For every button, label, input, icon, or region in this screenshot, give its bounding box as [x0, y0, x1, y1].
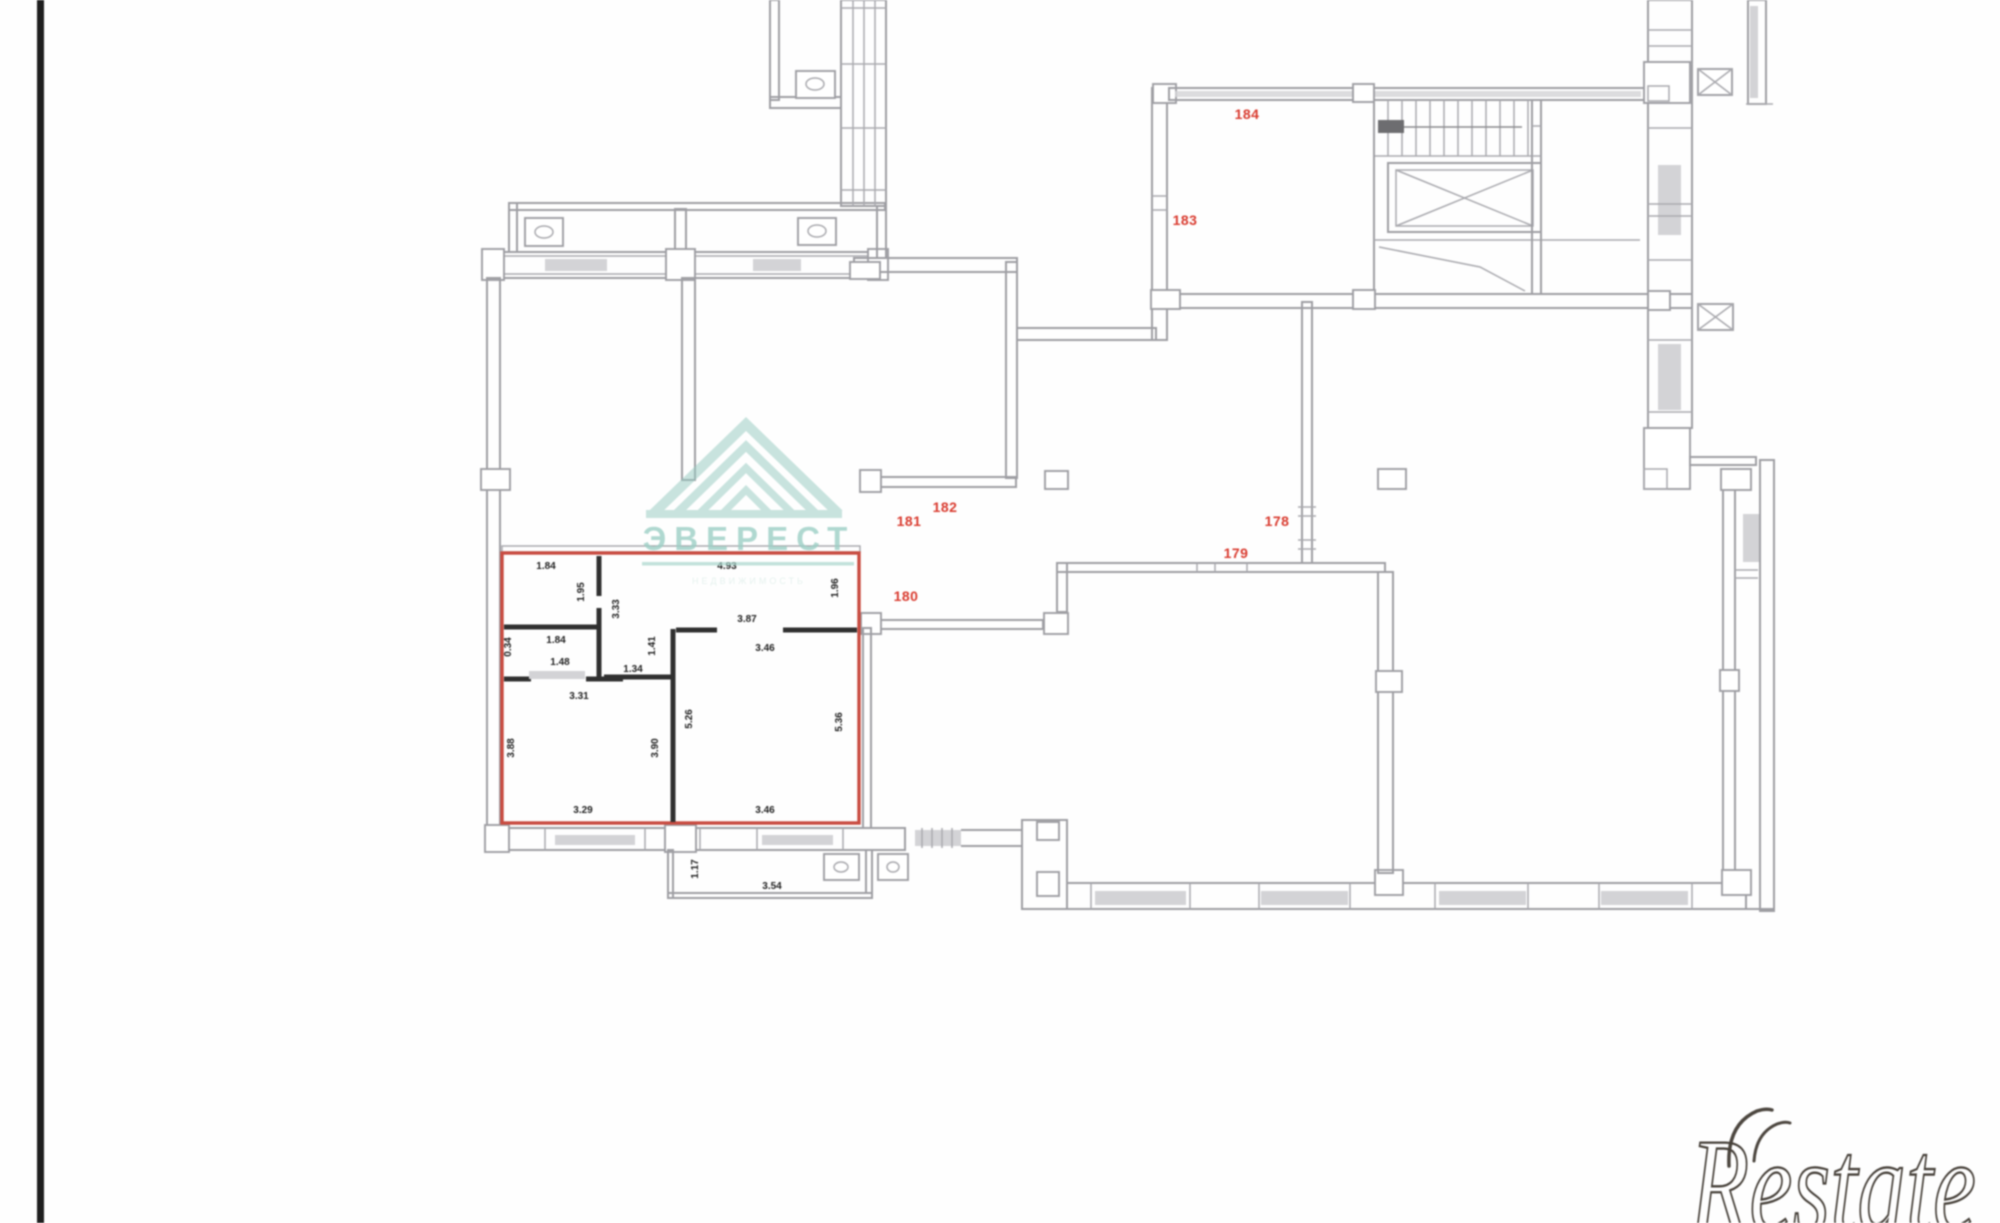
svg-text:1.84: 1.84	[546, 635, 566, 646]
svg-text:178: 178	[1265, 513, 1290, 529]
svg-text:1.41: 1.41	[647, 636, 658, 656]
svg-text:1.96: 1.96	[830, 578, 841, 598]
svg-text:183: 183	[1173, 212, 1198, 228]
svg-text:184: 184	[1235, 106, 1260, 122]
svg-text:5.26: 5.26	[684, 709, 695, 729]
svg-text:1.17: 1.17	[690, 859, 701, 879]
svg-text:3.29: 3.29	[573, 805, 593, 816]
svg-text:182: 182	[933, 499, 958, 515]
svg-text:3.46: 3.46	[755, 643, 775, 654]
svg-text:3.88: 3.88	[506, 738, 517, 758]
svg-text:3.54: 3.54	[762, 881, 782, 892]
svg-text:1.95: 1.95	[576, 582, 587, 602]
svg-text:1.34: 1.34	[623, 664, 643, 675]
svg-text:1.48: 1.48	[550, 657, 570, 668]
svg-text:3.90: 3.90	[650, 738, 661, 758]
svg-text:Restate: Restate	[1689, 1112, 1976, 1223]
svg-text:181: 181	[897, 513, 922, 529]
svg-text:0.34: 0.34	[503, 637, 514, 657]
svg-text:НЕДВИЖИМОСТЬ: НЕДВИЖИМОСТЬ	[692, 576, 806, 586]
svg-text:ЭВЕРЕСТ: ЭВЕРЕСТ	[643, 520, 856, 557]
svg-text:3.46: 3.46	[755, 805, 775, 816]
svg-text:5.36: 5.36	[834, 712, 845, 732]
svg-text:3.31: 3.31	[569, 691, 589, 702]
svg-text:3.87: 3.87	[737, 614, 757, 625]
svg-text:1.84: 1.84	[536, 561, 556, 572]
svg-text:179: 179	[1224, 545, 1249, 561]
svg-text:180: 180	[894, 588, 919, 604]
svg-text:3.33: 3.33	[611, 599, 622, 619]
